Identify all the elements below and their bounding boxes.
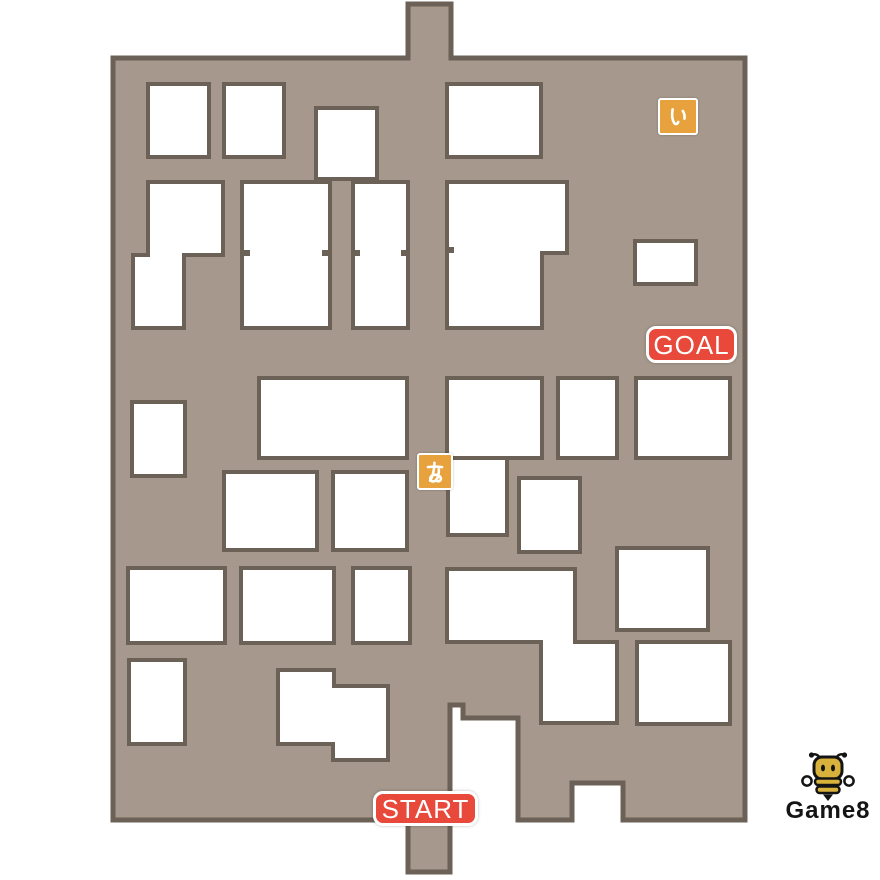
hiragana-i-icon bbox=[665, 104, 691, 130]
marker-start: START bbox=[373, 791, 478, 826]
marker-a bbox=[417, 453, 453, 490]
marker-i bbox=[658, 98, 698, 135]
goal-label: GOAL bbox=[653, 332, 729, 358]
game8-bee-icon bbox=[799, 750, 857, 802]
game8-logo-text: Game8 bbox=[785, 799, 870, 823]
dungeon-map-svg bbox=[0, 0, 880, 880]
game-map-page: GOAL START Game8 bbox=[0, 0, 880, 880]
hiragana-a-icon bbox=[422, 459, 448, 485]
start-label: START bbox=[382, 796, 470, 822]
marker-goal: GOAL bbox=[646, 326, 737, 363]
game8-logo: Game8 bbox=[774, 750, 880, 823]
